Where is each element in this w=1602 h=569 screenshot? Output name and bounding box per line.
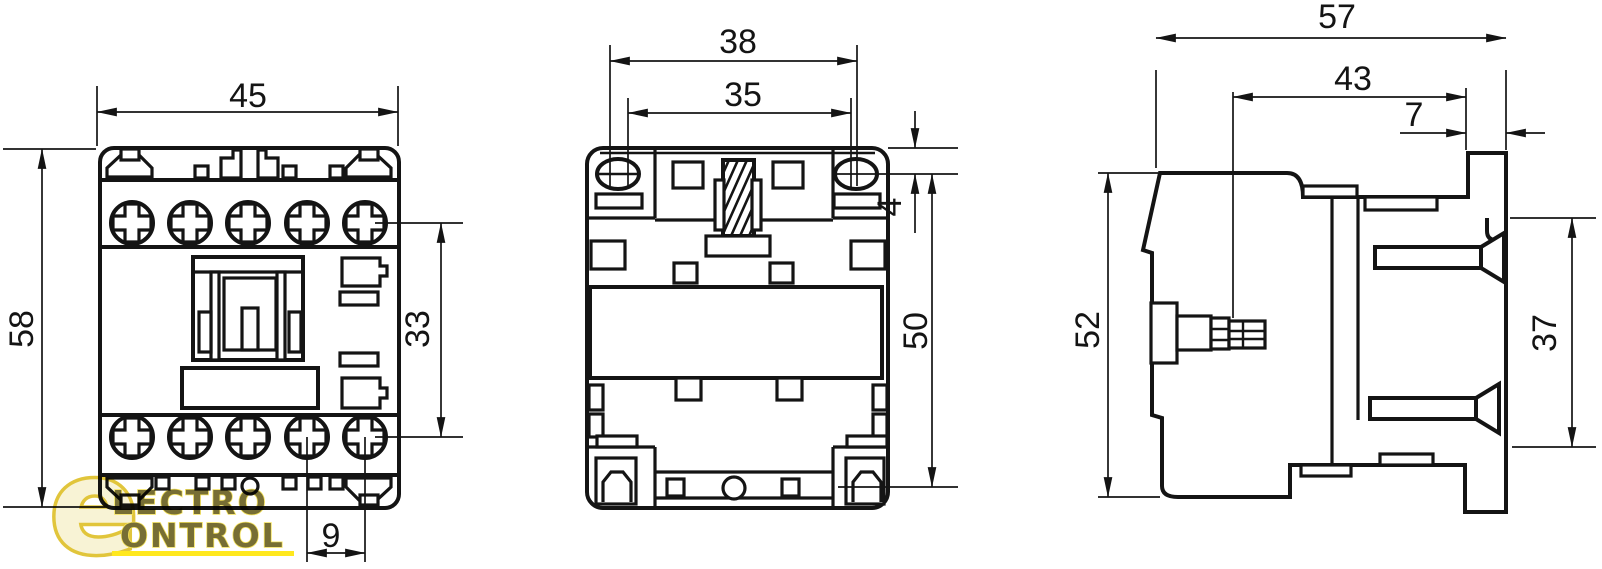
dim-label-bottom-holes-vertical: 50	[897, 312, 935, 350]
dim-label-side-height: 52	[1069, 311, 1107, 349]
dim-label-bottom-holes-outer: 38	[719, 23, 757, 61]
side-view: 57 43 7 52 37	[1069, 0, 1596, 512]
dim-label-bottom-hole-offset: 4	[871, 198, 909, 217]
bottom-label-band	[590, 287, 882, 378]
dim-label-front-height: 58	[3, 310, 41, 348]
watermark-line2: ONTROL	[120, 516, 285, 555]
dim-label-bottom-holes-inner: 35	[724, 76, 762, 114]
watermark-underline	[112, 551, 294, 556]
dim-label-front-pitch: 9	[322, 517, 341, 555]
dim-label-side-rail-lip: 7	[1405, 96, 1424, 134]
contactor-dimensional-drawing: 45 58 33 9	[0, 0, 1602, 569]
bottom-view: 38 35 4 50	[587, 23, 958, 508]
dim-label-front-contact-rows: 33	[399, 310, 437, 348]
dimensional-drawing-page: 45 58 33 9	[0, 0, 1602, 569]
dim-label-side-body-depth: 43	[1334, 60, 1372, 98]
dim-label-front-width: 45	[229, 77, 267, 115]
front-nameplate	[182, 368, 318, 408]
dim-label-side-rail-clip: 37	[1526, 314, 1564, 352]
dim-label-side-depth: 57	[1318, 0, 1356, 36]
front-center-mechanism	[182, 257, 318, 408]
